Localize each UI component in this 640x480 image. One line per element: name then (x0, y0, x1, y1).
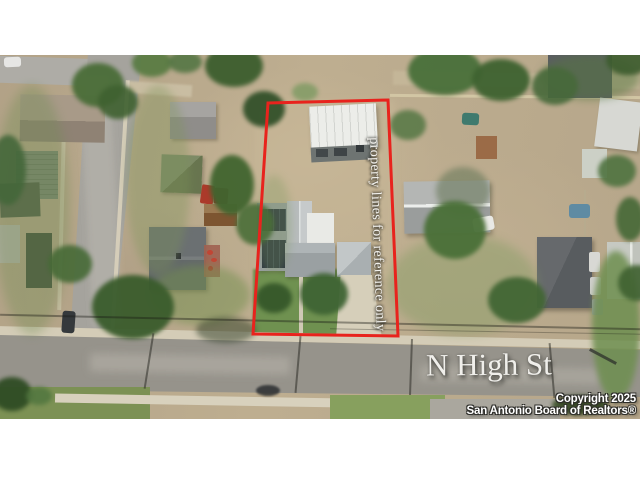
page: { "meta": { "kind": "aerial real-estate … (0, 0, 640, 480)
copyright-line2: San Antonio Board of Realtors® (467, 406, 636, 418)
copyright-line1: Copyright 2025 (467, 394, 636, 406)
aerial-photo: property lines for reference only N High… (0, 55, 640, 419)
street-name-label: N High St (426, 346, 552, 383)
copyright-watermark: Copyright 2025 San Antonio Board of Real… (467, 394, 636, 417)
